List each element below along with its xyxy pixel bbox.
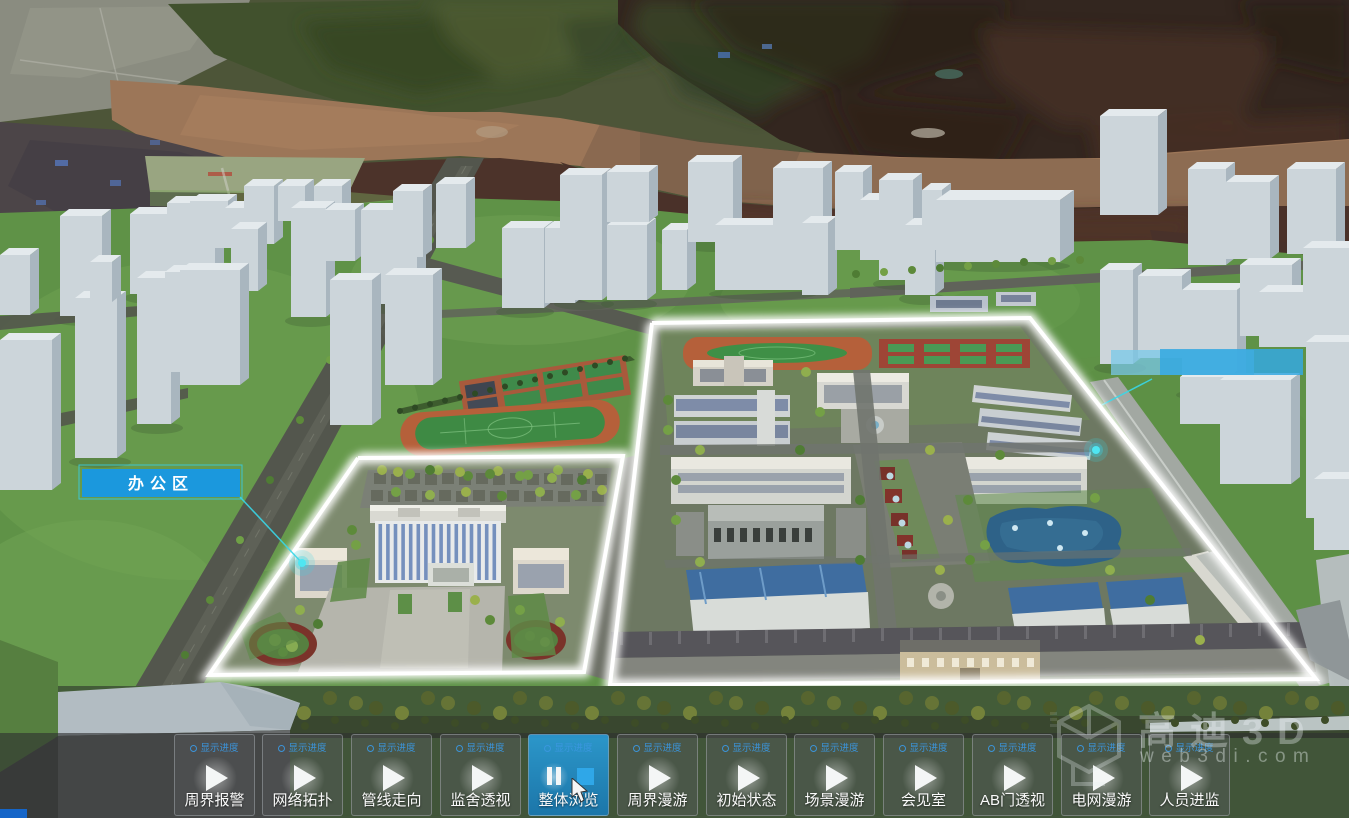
- svg-text:办公区: 办公区: [128, 474, 194, 493]
